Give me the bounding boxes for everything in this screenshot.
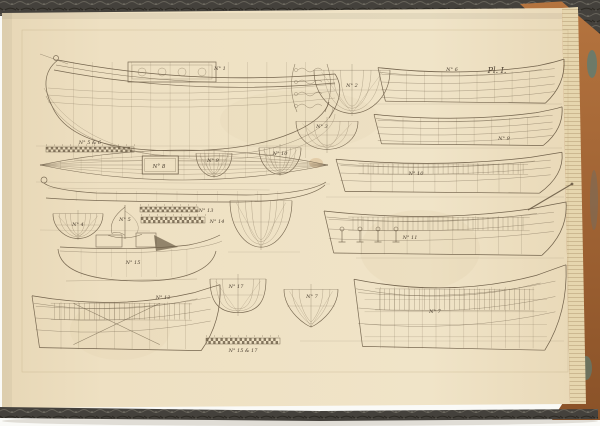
marble-grey-streak xyxy=(590,170,598,230)
page-top-shade xyxy=(2,13,562,19)
page-stain xyxy=(220,90,380,150)
plate-number-label: Pl. I. xyxy=(487,66,507,75)
book-photo: N° 1N° 5 & 6N° 2N° 3N° 8N° 9N° 10N° 13N°… xyxy=(0,0,600,426)
drawing-bottom-scale-label: N° 15 & 17 xyxy=(228,348,259,354)
page-gutter-shade xyxy=(2,13,12,408)
drawing-no15-hull-profile-label: N° 15 xyxy=(125,260,141,266)
drawing-no5-sail-section-label: N° 5 xyxy=(118,217,131,223)
drawing-no7-hull-profile-label: N° 7 xyxy=(428,309,441,315)
drawing-no10-body-plan-label: N° 10 xyxy=(272,151,289,157)
marble-teal-patch xyxy=(587,50,597,78)
drawing-no12-hull-profile-label: N° 12 xyxy=(155,295,171,301)
drawing-no4-body-plan-label: N° 4 xyxy=(71,222,84,228)
drawing-no5-6-scale-label: N° 5 & 6 xyxy=(78,140,102,146)
drawing-no7-body-plan-label: N° 7 xyxy=(305,294,318,300)
drawing-no13-scale-label: N° 13 xyxy=(198,208,214,214)
drawing-no9-body-plan-label: N° 9 xyxy=(206,158,219,164)
drawing-no17-body-plan-label: N° 17 xyxy=(228,284,245,290)
drawing-no6-hull-profile-label: N° 6 xyxy=(445,67,458,73)
drawing-no1-sheer-profile-label: N° 1 xyxy=(213,66,226,72)
drawing-no2-body-plan-label: N° 2 xyxy=(345,83,358,89)
drawing-no10-hull-profile-label: N° 10 xyxy=(408,171,425,177)
drawing-no9-hull-profile-label: N° 9 xyxy=(497,136,510,142)
drawing-no3-body-plan-label: N° 3 xyxy=(315,124,328,130)
drawing-no11-hull-profile-label: N° 11 xyxy=(402,235,418,241)
drawing-no8-half-breadth-plan-label: N° 8 xyxy=(152,164,166,170)
drawing-no14-scale-label: N° 14 xyxy=(209,219,225,225)
